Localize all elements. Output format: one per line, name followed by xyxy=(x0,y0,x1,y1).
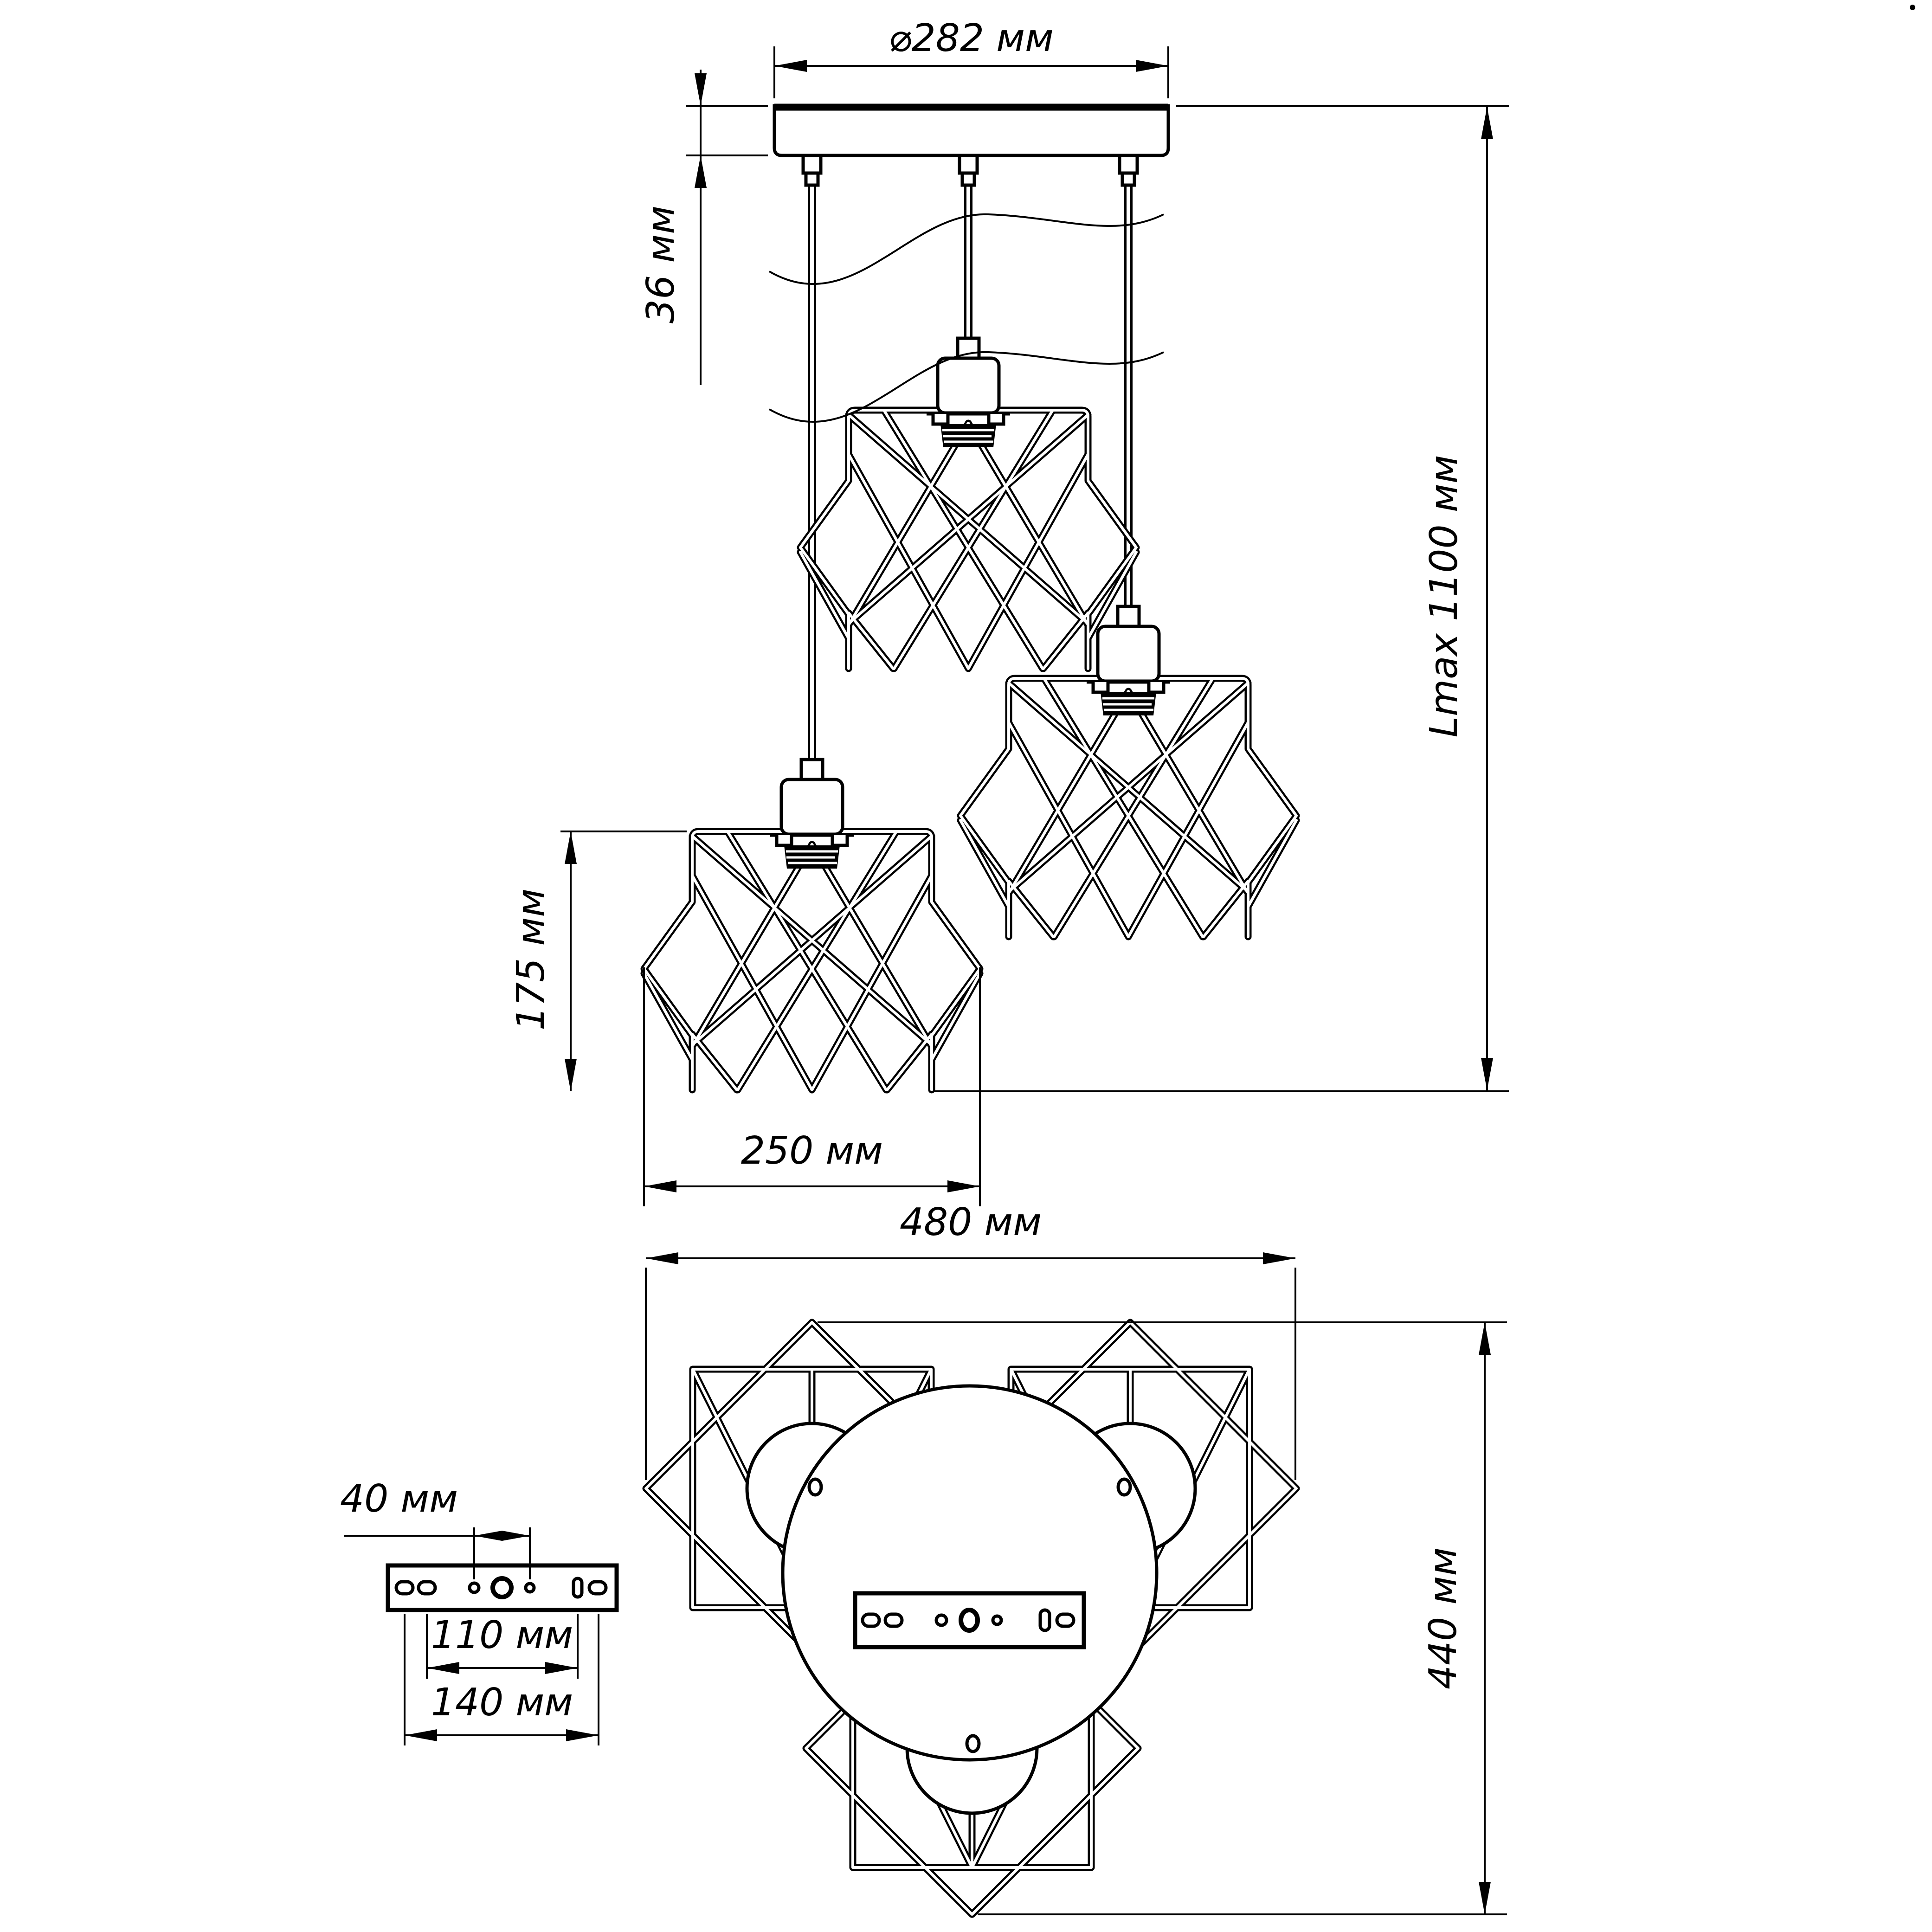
dim-max-length: Lmax 1100 мм xyxy=(934,106,1509,1091)
bracket-140-label: 140 мм xyxy=(431,1681,573,1725)
plan-width-label: 480 мм xyxy=(900,1200,1042,1244)
plan-view: 480 мм 440 мм xyxy=(646,1200,1507,1914)
side-bracket-view: 40 мм 110 мм 140 мм xyxy=(340,1477,617,1745)
ceiling-canopy xyxy=(774,106,1168,185)
plan-mounting-bracket xyxy=(855,1593,1084,1647)
max-length-label: Lmax 1100 мм xyxy=(1422,455,1466,738)
stray-mark xyxy=(1910,5,1915,10)
wire-cage-shade-right xyxy=(960,678,1296,937)
lamp-technical-drawing: ⌀282 мм 36 мм Lmax 1100 мм 175 мм xyxy=(0,0,1932,1932)
canopy-height-label: 36 мм xyxy=(639,206,683,323)
dim-bracket-110: 110 мм xyxy=(427,1613,578,1679)
bracket-40-label: 40 мм xyxy=(340,1477,458,1521)
front-view: ⌀282 мм 36 мм Lmax 1100 мм 175 мм xyxy=(509,16,1509,1206)
dim-shade-height: 175 мм xyxy=(509,831,687,1091)
dim-canopy-height: 36 мм xyxy=(639,70,768,385)
wire-cage-shade-center xyxy=(800,410,1136,669)
canopy-diameter-label: ⌀282 мм xyxy=(889,16,1054,60)
plan-depth-label: 440 мм xyxy=(1421,1547,1465,1689)
cord-grip xyxy=(803,155,821,185)
wire-cage-shade-left xyxy=(644,831,980,1090)
lamp-socket-left xyxy=(770,760,854,869)
shade-height-label: 175 мм xyxy=(509,889,553,1030)
shade-width-label: 250 мм xyxy=(741,1129,883,1173)
cord-grip xyxy=(960,155,977,185)
cord-grip xyxy=(1120,155,1137,185)
bracket-110-label: 110 мм xyxy=(431,1613,573,1657)
dim-canopy-diameter: ⌀282 мм xyxy=(774,16,1168,98)
plan-canopy xyxy=(783,1386,1157,1760)
